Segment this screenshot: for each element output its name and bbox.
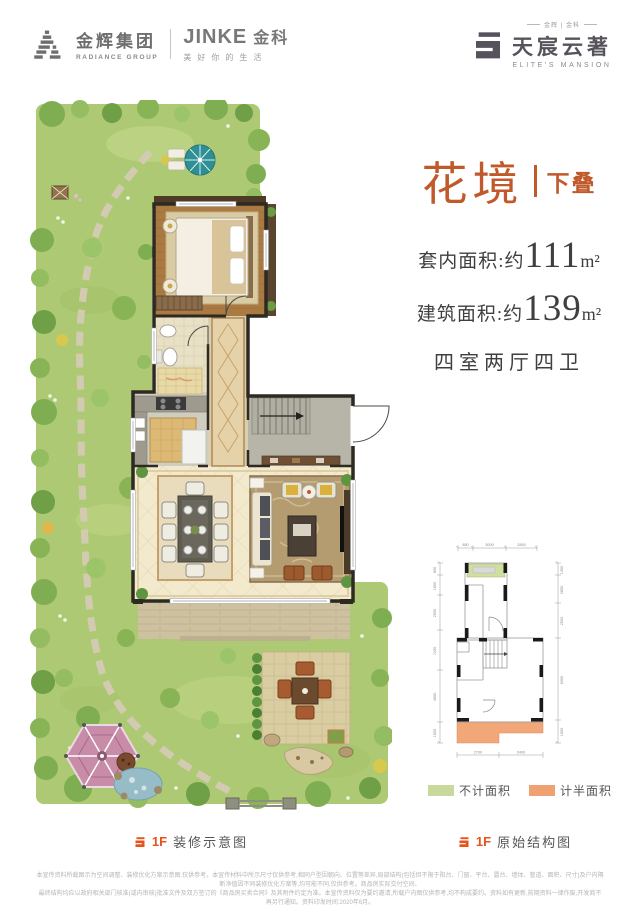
gross-area-value: 139 <box>523 287 582 330</box>
room-count: 四室两厅四卫 <box>398 346 620 375</box>
outdoor-dining-patio <box>252 652 350 744</box>
stairs-symbol <box>484 640 508 668</box>
bedroom-furniture <box>156 207 276 311</box>
wall-piers <box>457 563 543 722</box>
inner-area-line: 套内面积:约 111 m² <box>398 234 620 277</box>
radiance-logo-icon <box>30 27 64 61</box>
kitchen-fixtures <box>133 396 208 466</box>
dim-right-0: 1350 <box>560 566 564 574</box>
disclaimer-line1: 本宣传资料所载图示为空间调整、装修优化方案示意图,仅供参考。本宣传材料中所示尺寸… <box>36 872 604 890</box>
dim-left-4: 4600 <box>433 693 437 701</box>
radiance-cn: 金辉集团 <box>76 27 158 52</box>
dining-set <box>158 476 232 580</box>
project-logo: 金辉 | 金科 天宸云著 ELITE'S MANSION <box>472 20 612 69</box>
unit-title-row: 花境 下叠 <box>398 148 620 214</box>
structure-caption-text: 原始结构图 <box>497 832 572 851</box>
structure-caption: 1F 原始结构图 <box>410 832 620 851</box>
jinke-tagline: 美好你的生活 <box>183 52 289 63</box>
dim-left-0: 850 <box>433 567 437 573</box>
jinke-wordmark: JINKE 金科 美好你的生活 <box>183 24 289 63</box>
disclaimer-line2: 最终结构均应以政府相关部门核准(或内审核)批准文件及双方签订的《商品房买卖合同》… <box>36 890 604 908</box>
dim-top-1: 3000 <box>485 543 493 547</box>
brand-pre-text: 金辉 | 金科 <box>544 20 580 29</box>
dim-right-4: 1500 <box>560 728 564 736</box>
project-wordmark: 金辉 | 金科 天宸云著 ELITE'S MANSION <box>512 20 612 69</box>
legend-swatch-green <box>428 785 454 796</box>
brand-dash-right <box>584 24 597 25</box>
structure-outline <box>457 563 543 722</box>
brand-dash-left <box>527 24 540 25</box>
legend-item-uncounted: 不计面积 <box>428 782 511 799</box>
plan-caption: 1F 装修示意图 <box>96 832 286 851</box>
brand-en: ELITE'S MANSION <box>512 62 611 69</box>
inner-area-unit: m² <box>580 251 599 272</box>
inner-area-label: 套内面积:约 <box>418 246 524 273</box>
brand-cn: 天宸云著 <box>512 31 612 61</box>
logo-divider <box>170 29 171 59</box>
dim-right-1: 2850 <box>560 586 564 594</box>
dim-right-3: 6000 <box>560 676 564 684</box>
gross-area-line: 建筑面积:约 139 m² <box>398 287 620 330</box>
legend-label-uncounted: 不计面积 <box>459 782 511 799</box>
balcony-slab <box>473 567 495 573</box>
radiance-group-wordmark: 金辉集团 RADIANCE GROUP <box>76 27 158 61</box>
structure-caption-floor: 1F <box>476 834 491 849</box>
structure-diagram: 850 3000 2850 850 1800 2500 7200 4600 15… <box>426 540 620 776</box>
jinke-name: JINKE <box>183 26 247 49</box>
title-divider <box>534 165 537 197</box>
legend-label-halfcounted: 计半面积 <box>560 782 612 799</box>
gross-area-unit: m² <box>582 304 601 325</box>
hallway-runner-rug <box>212 318 244 466</box>
disclaimer: 本宣传资料所载图示为空间调整、装修优化方案示意图,仅供参考。本宣传材料中所示尺寸… <box>36 872 604 908</box>
unit-title: 花境 <box>422 148 524 214</box>
dim-left-1: 1800 <box>433 582 437 590</box>
dim-bottom-0: 2700 <box>474 751 482 755</box>
area-legend: 不计面积 计半面积 <box>428 782 612 799</box>
unit-subtitle: 下叠 <box>547 164 597 198</box>
unit-info-panel: 花境 下叠 套内面积:约 111 m² 建筑面积:约 139 m² 四室两厅四卫 <box>398 148 620 375</box>
legend-item-halfcounted: 计半面积 <box>529 782 612 799</box>
dim-left-5: 1500 <box>433 729 437 737</box>
dim-bottom-1: 2400 <box>517 751 525 755</box>
dim-left-3: 7200 <box>433 647 437 655</box>
cloud-mark-icon <box>134 836 146 848</box>
cloud-mansion-logo-icon <box>472 29 504 61</box>
plan-caption-text: 装修示意图 <box>173 832 248 851</box>
legend-swatch-orange <box>529 785 555 796</box>
jinke-cn: 金科 <box>253 24 289 48</box>
radiance-en: RADIANCE GROUP <box>76 54 158 61</box>
gross-area-label: 建筑面积:约 <box>417 299 523 326</box>
half-counted-area <box>457 722 543 743</box>
dim-top-0: 850 <box>462 543 468 547</box>
dim-top-2: 2850 <box>517 543 525 547</box>
brand-pre-row: 金辉 | 金科 <box>527 20 597 29</box>
dim-left-2: 2500 <box>433 609 437 617</box>
dim-right-2: 2500 <box>560 617 564 625</box>
plan-caption-floor: 1F <box>152 834 167 849</box>
cloud-mark-icon <box>458 836 470 848</box>
header-left-logos: 金辉集团 RADIANCE GROUP JINKE 金科 美好你的生活 <box>30 24 289 63</box>
decorated-floor-plan <box>30 100 392 816</box>
inner-area-value: 111 <box>525 234 581 277</box>
